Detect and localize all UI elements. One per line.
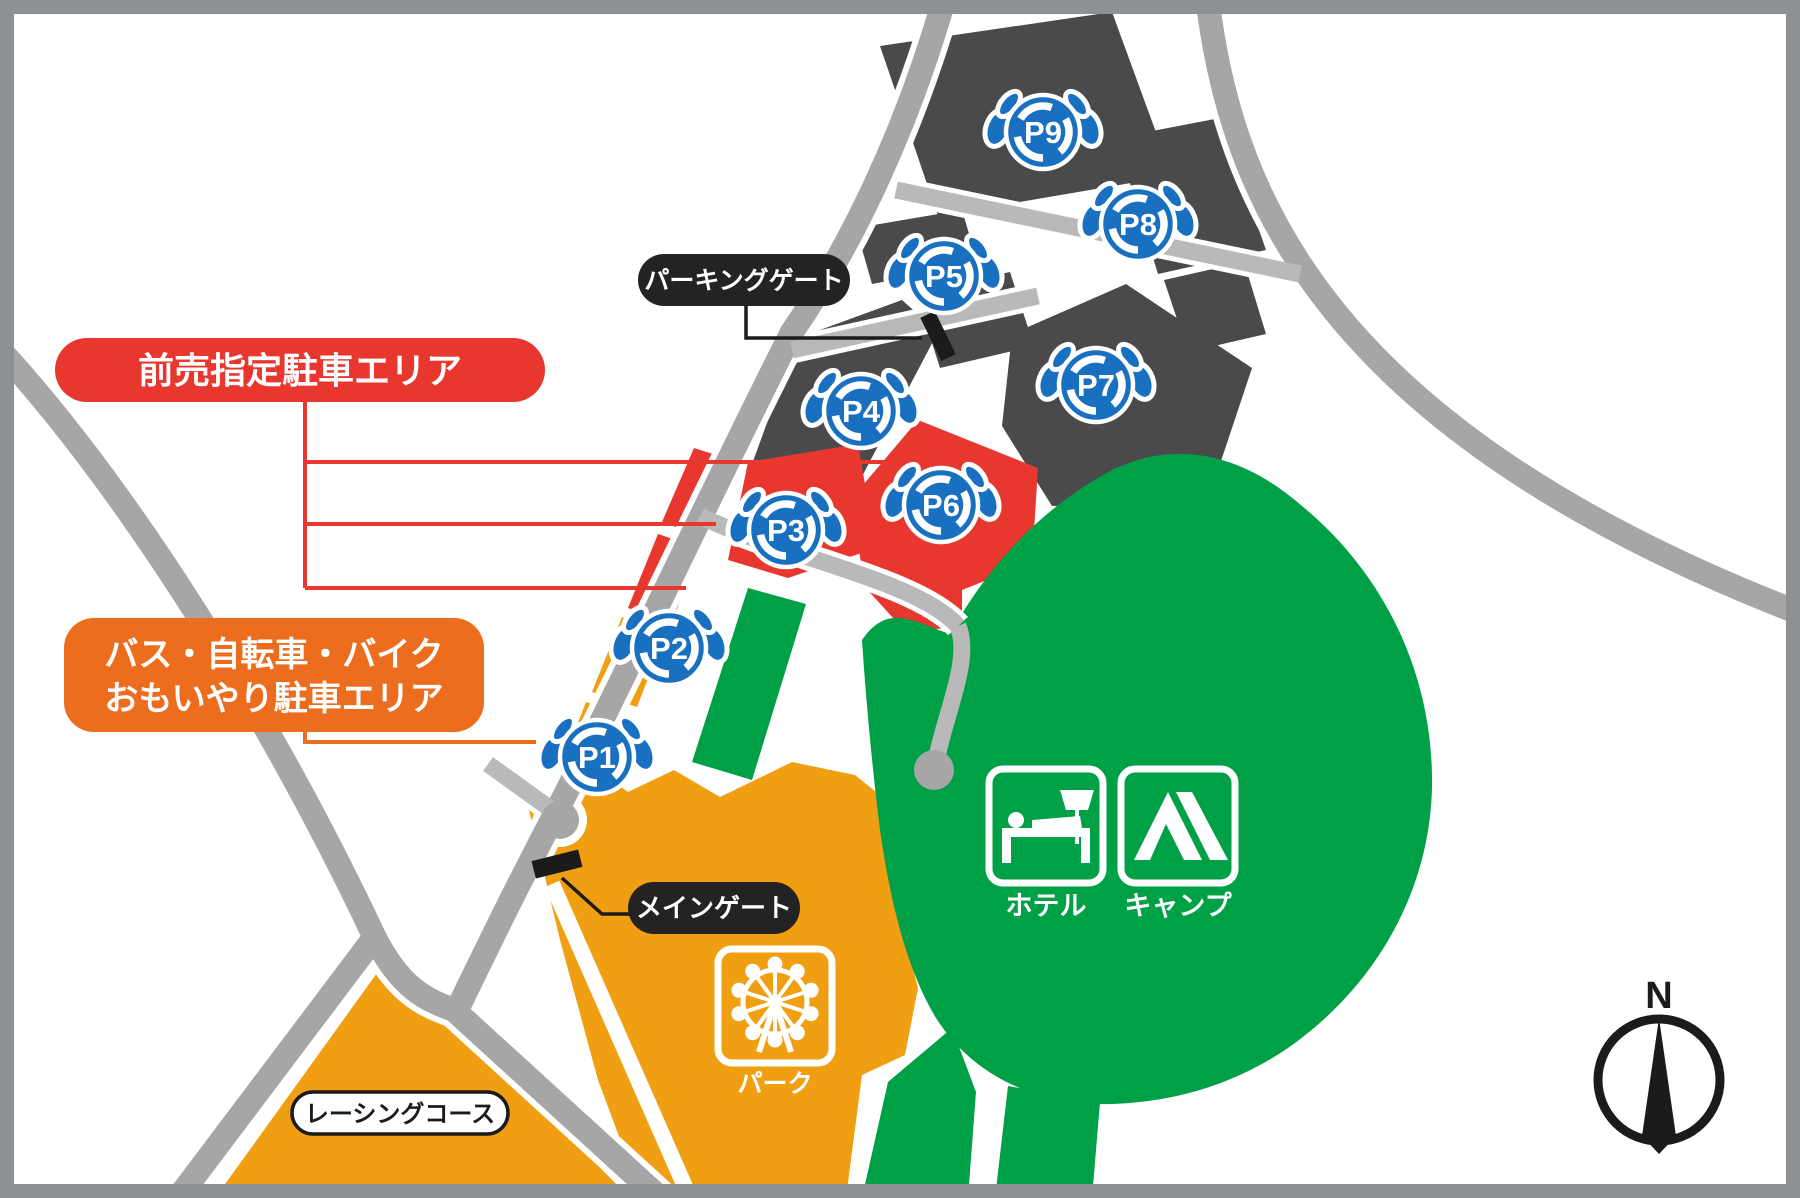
road-end-circle-green bbox=[914, 750, 954, 790]
bus-area-label-line2: おもいやり駐車エリア bbox=[104, 680, 443, 718]
legend-advance-area: 前売指定駐車エリア bbox=[55, 338, 545, 402]
main-gate-callout: メインゲート bbox=[628, 882, 800, 934]
camp-label: キャンプ bbox=[1124, 891, 1232, 921]
parking-gate-callout: パーキングゲート bbox=[638, 254, 850, 306]
park-label: パーク bbox=[737, 1070, 812, 1098]
compass-north-label: N bbox=[1645, 975, 1672, 1017]
parking-badge-label: P7 bbox=[1077, 368, 1115, 403]
parking-gate-label: パーキングゲート bbox=[644, 267, 843, 295]
parking-badge-label: P2 bbox=[650, 631, 688, 666]
legend-bus-area: バス・自転車・バイク おもいやり駐車エリア bbox=[64, 618, 484, 732]
bus-area-label-line1: バス・自転車・バイク bbox=[104, 636, 443, 674]
parking-badge-label: P1 bbox=[578, 740, 616, 775]
parking-badge-label: P8 bbox=[1119, 207, 1157, 242]
parking-badge-label: P3 bbox=[767, 513, 805, 548]
parking-area-map: ホテル キャンプ パーク 前売指定駐車エリア bbox=[0, 0, 1800, 1198]
hotel-label: ホテル bbox=[1006, 891, 1087, 921]
parking-badge-label: P4 bbox=[842, 394, 881, 429]
parking-badge-label: P5 bbox=[925, 259, 963, 294]
road-end-circle-gate bbox=[541, 801, 579, 839]
green-south-area-1 bbox=[995, 1086, 1100, 1198]
racing-course-callout: レーシングコース bbox=[292, 1092, 508, 1134]
parking-badge-label: P6 bbox=[922, 488, 960, 523]
racing-course-label: レーシングコース bbox=[305, 1101, 495, 1128]
advance-area-label: 前売指定駐車エリア bbox=[138, 350, 462, 391]
main-gate-label: メインゲート bbox=[636, 893, 792, 923]
parking-badge-label: P9 bbox=[1024, 115, 1062, 150]
map-canvas: ホテル キャンプ パーク 前売指定駐車エリア bbox=[0, 0, 1800, 1198]
